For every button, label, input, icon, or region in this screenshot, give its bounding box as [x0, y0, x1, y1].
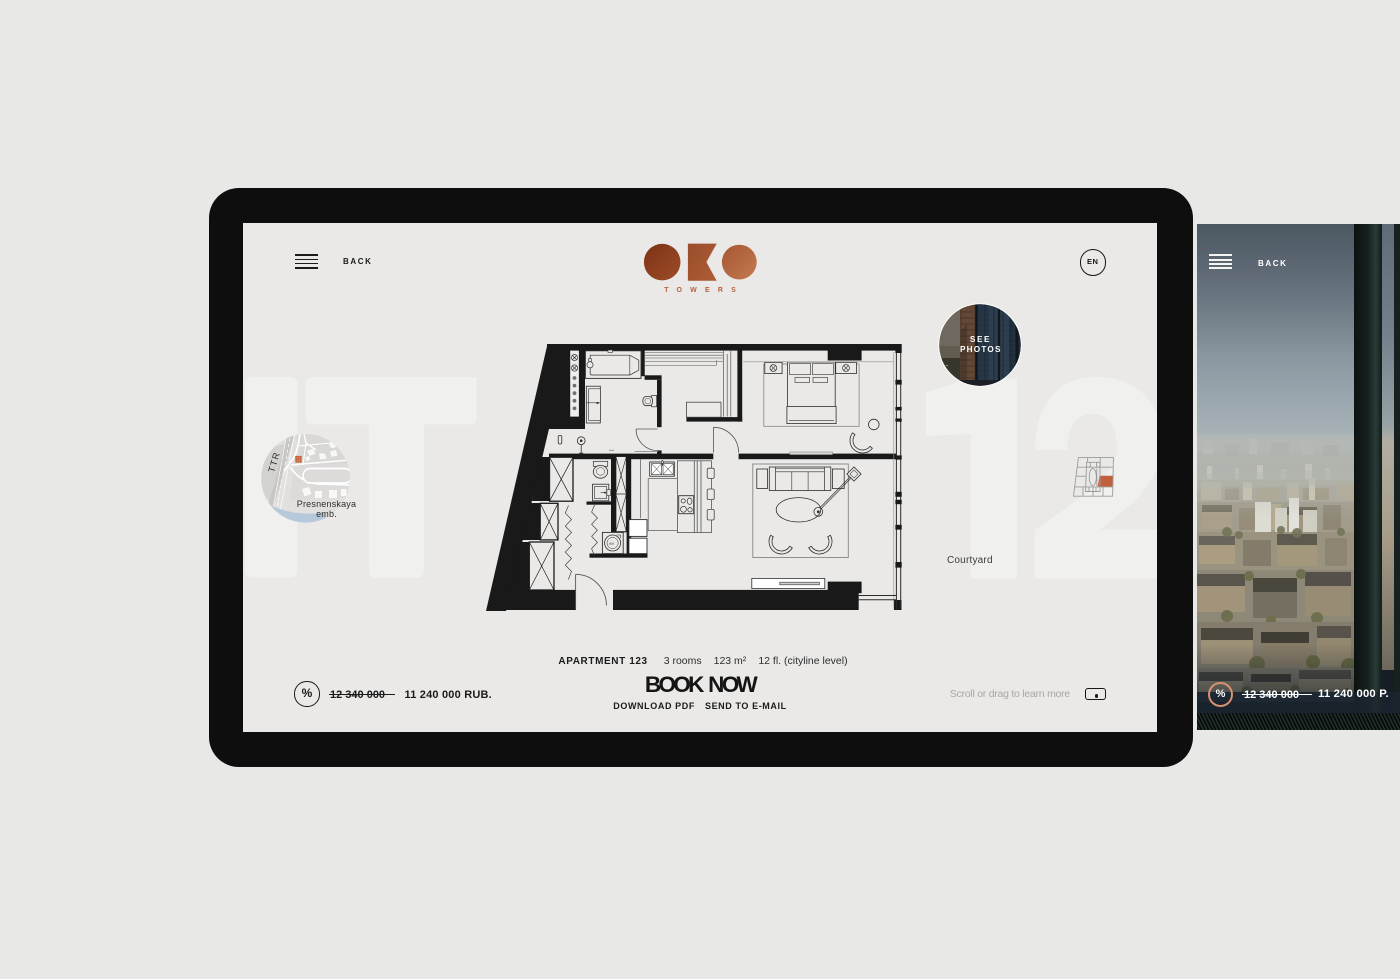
svg-text:SEE: SEE — [970, 335, 991, 344]
svg-text:WH: WH — [609, 542, 615, 546]
svg-text:PHOTOS: PHOTOS — [960, 345, 1002, 354]
